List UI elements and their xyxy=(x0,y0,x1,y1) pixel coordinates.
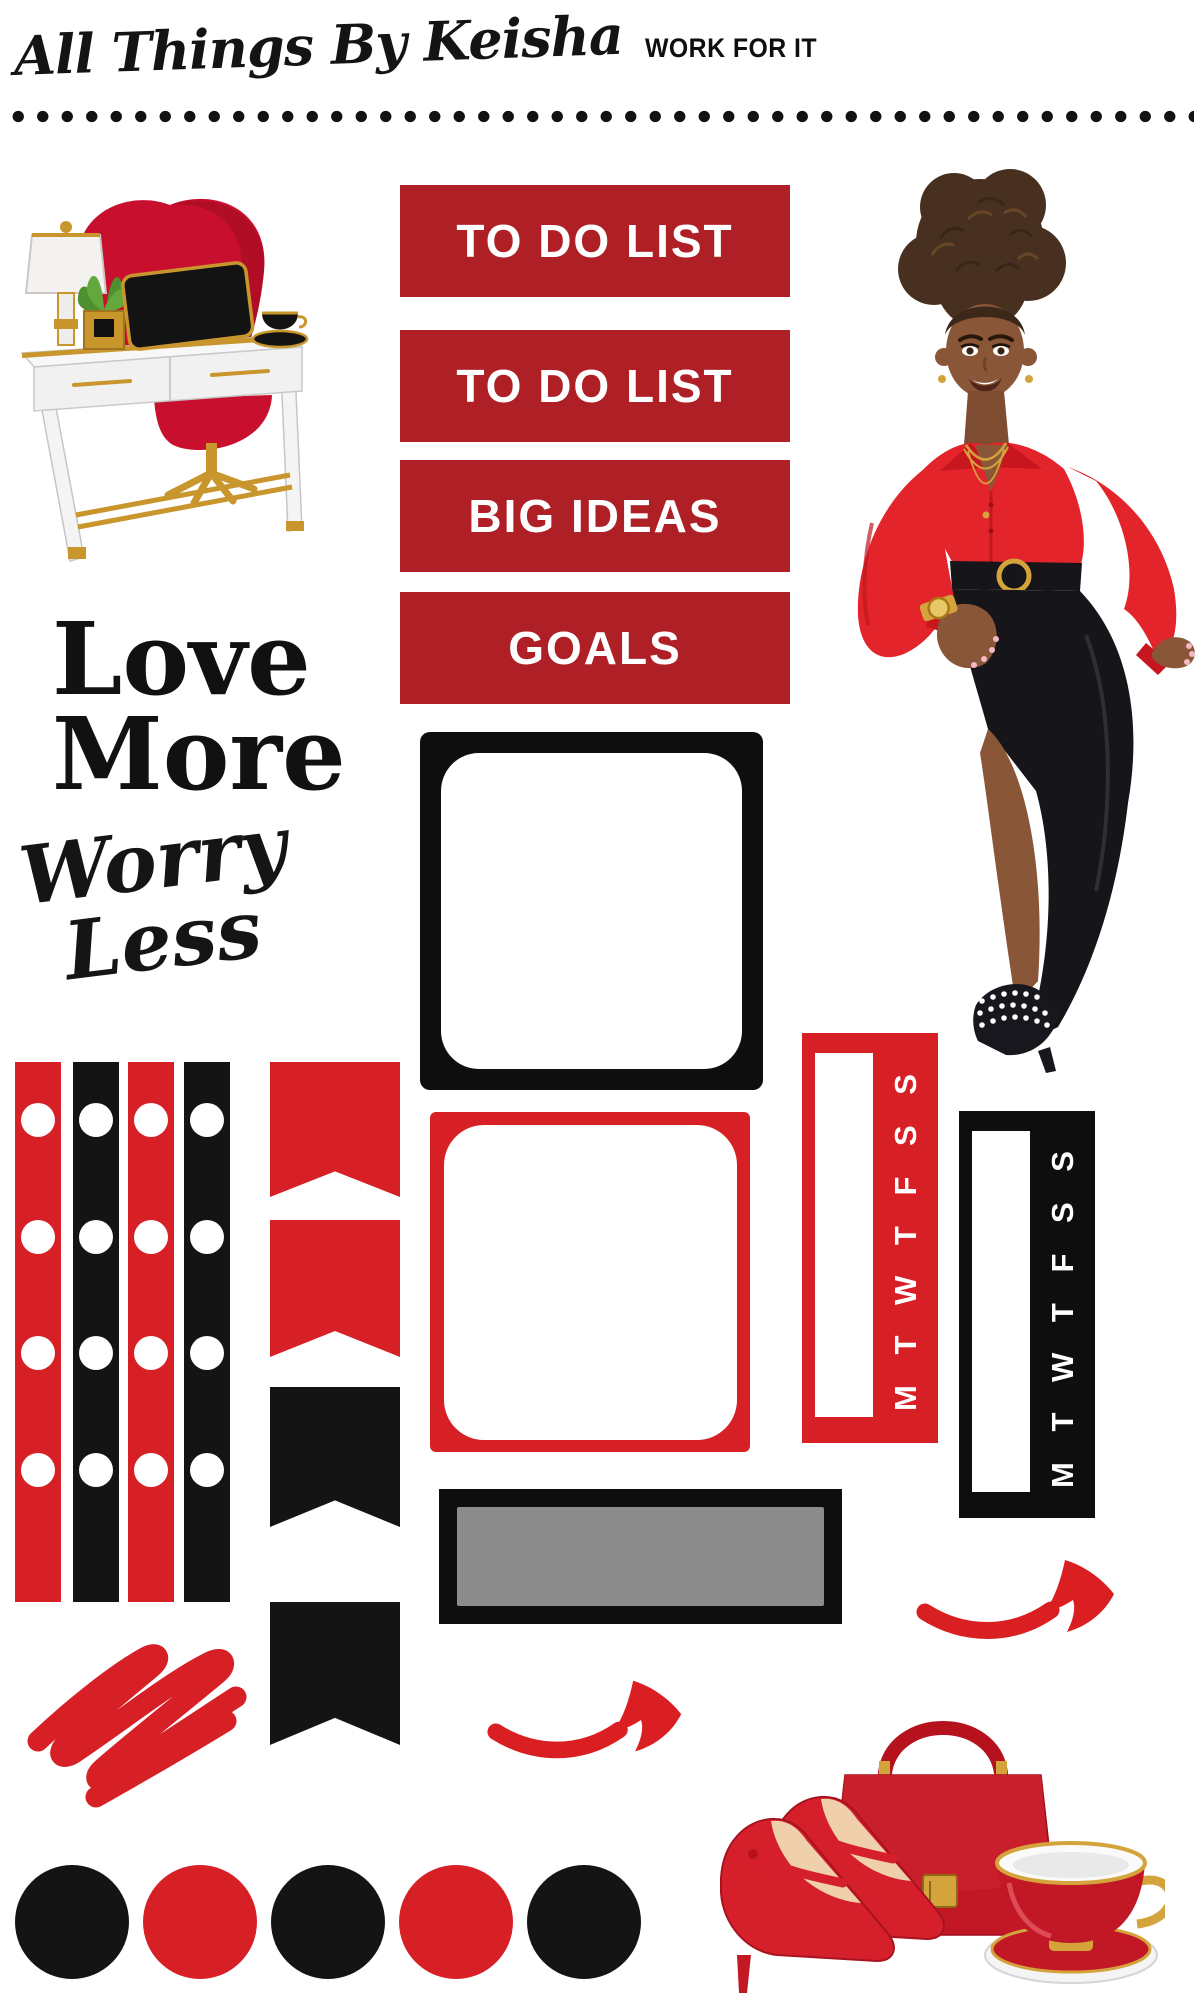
black-heel-icon xyxy=(973,984,1060,1073)
pennant-flag-red-1 xyxy=(270,1062,400,1197)
quote-line: More xyxy=(52,707,352,802)
week-strip-black: M T W T F S S xyxy=(959,1111,1095,1518)
sticker-banner-big-ideas: BIG IDEAS xyxy=(400,460,790,572)
washi-strip-red-1 xyxy=(15,1062,61,1602)
washi-strip-black-1 xyxy=(73,1062,119,1602)
pennant-flag-red-2 xyxy=(270,1220,400,1357)
washi-strip-black-2 xyxy=(184,1062,230,1602)
scribble-illustration xyxy=(22,1615,257,1820)
neck xyxy=(964,391,1009,445)
banner-label: GOALS xyxy=(508,621,682,675)
accessories-illustration xyxy=(693,1703,1165,1995)
collection-title: WORK FOR IT xyxy=(645,33,817,64)
dot-sticker-red xyxy=(399,1865,513,1979)
coffee-cup-icon xyxy=(253,313,307,347)
week-strip-writing-slot xyxy=(972,1131,1030,1492)
dot-sticker-black xyxy=(15,1865,129,1979)
businesswoman-illustration xyxy=(828,143,1200,1075)
face-icon xyxy=(935,304,1037,398)
arrow-icon xyxy=(486,1670,692,1772)
sticker-banner-todo-1: TO DO LIST xyxy=(400,185,790,297)
sticker-banner-todo-2: TO DO LIST xyxy=(400,330,790,442)
dot-sticker-black xyxy=(271,1865,385,1979)
quote-line: Love xyxy=(52,612,352,707)
laptop-icon xyxy=(122,262,254,351)
banner-label: BIG IDEAS xyxy=(468,489,721,543)
dot-sticker-red xyxy=(143,1865,257,1979)
box-writing-area xyxy=(441,753,742,1069)
desk-icon xyxy=(22,335,304,561)
arrow-icon xyxy=(914,1550,1126,1652)
gray-fill-box xyxy=(439,1489,842,1624)
teacup-icon xyxy=(985,1843,1165,1983)
sticker-sheet: All Things By Keisha WORK FOR IT xyxy=(0,0,1200,2000)
washi-strip-red-2 xyxy=(128,1062,174,1602)
banner-label: TO DO LIST xyxy=(456,214,733,268)
week-strip-writing-slot xyxy=(815,1053,873,1417)
sticker-banner-goals: GOALS xyxy=(400,592,790,704)
worry-less-quote: Worry Less xyxy=(0,802,317,997)
dot-sticker-black xyxy=(527,1865,641,1979)
desk-illustration xyxy=(18,143,310,579)
week-letters: M T W T F S S xyxy=(1045,1142,1081,1488)
pennant-flag-black-1 xyxy=(270,1387,400,1527)
dotted-divider xyxy=(6,110,1194,123)
love-more-quote: Love More xyxy=(52,612,352,802)
black-outline-box xyxy=(420,732,763,1090)
pennant-flag-black-2 xyxy=(270,1602,400,1745)
week-letters: M T W T F S S xyxy=(888,1065,924,1411)
box-writing-area xyxy=(444,1125,737,1440)
banner-label: TO DO LIST xyxy=(456,359,733,413)
box-gray-area xyxy=(457,1507,824,1606)
belt-icon xyxy=(950,561,1082,591)
brand-title: All Things By Keisha xyxy=(13,3,624,88)
week-strip-red: M T W T F S S xyxy=(802,1033,938,1443)
red-outline-box xyxy=(430,1112,750,1452)
